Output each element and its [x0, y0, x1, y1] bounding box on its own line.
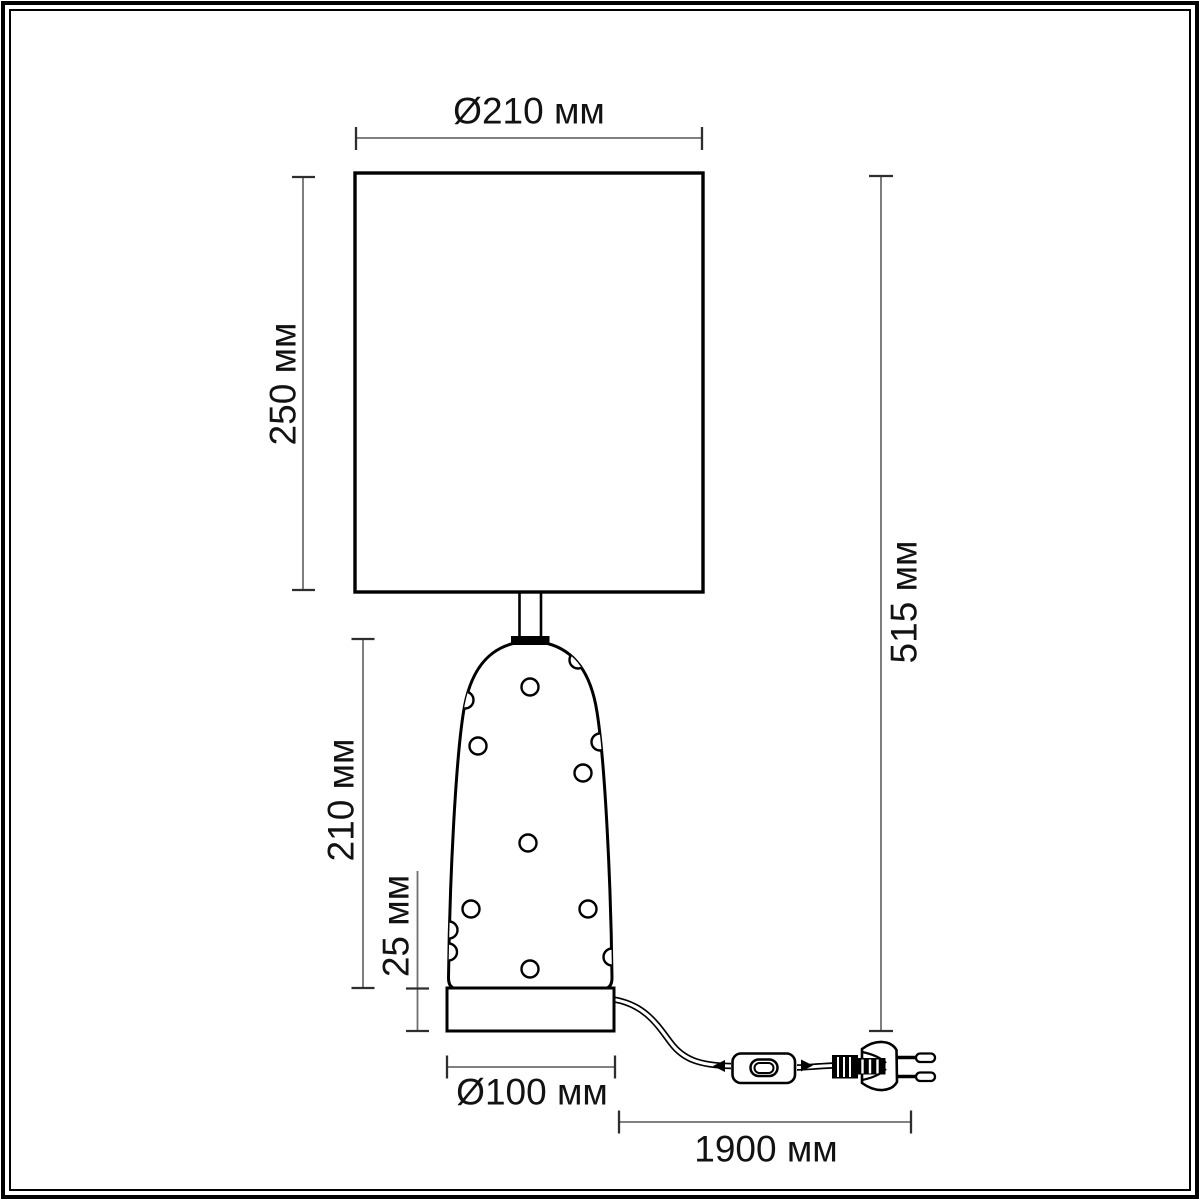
label-shade-diameter: Ø210 мм [453, 93, 605, 130]
label-shade-height: 250 мм [265, 323, 302, 446]
label-cord-length: 1900 мм [694, 1131, 837, 1168]
plug-prongs [896, 1054, 935, 1082]
lamp-collar [511, 636, 550, 645]
lamp-technical-drawing [0, 0, 1200, 1200]
lamp-neck [520, 592, 542, 637]
power-plug [832, 1042, 935, 1090]
lamp-base [447, 988, 614, 1031]
label-base-height: 25 мм [378, 875, 415, 977]
label-base-diameter: Ø100 мм [456, 1074, 608, 1111]
lamp-body [440, 644, 621, 990]
label-body-height: 210 мм [323, 739, 360, 862]
power-cord [614, 1000, 833, 1073]
inline-switch [733, 1054, 796, 1084]
lampshade [355, 173, 703, 592]
cord-clip-left [713, 1060, 725, 1072]
label-overall-height: 515 мм [886, 541, 923, 664]
